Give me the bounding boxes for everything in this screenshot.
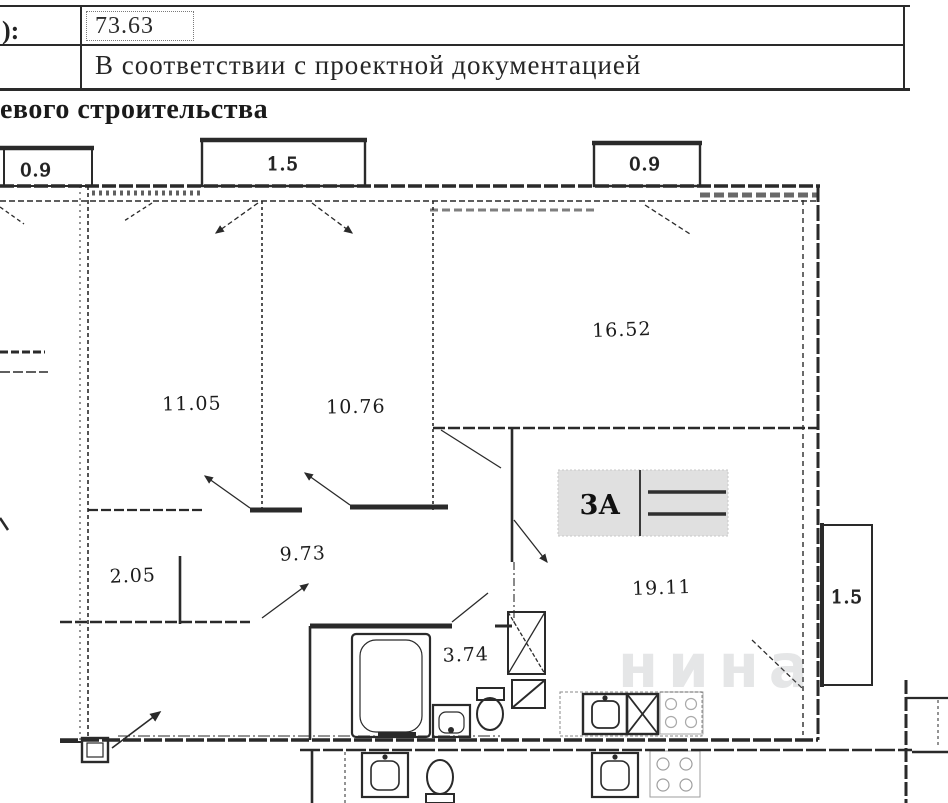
- lower-kitchen-sink: [592, 753, 638, 797]
- unit-stamp-label: 3А: [580, 490, 621, 521]
- kitchen-burners: [660, 692, 703, 734]
- balcony-top-right: 0.9: [592, 143, 702, 186]
- balcony-top-center-area: 1.5: [267, 154, 299, 175]
- balcony-right: 1.5: [822, 523, 872, 687]
- floor-plan-drawing: 0.9 1.5 0.9 1.5: [0, 0, 948, 803]
- balcony-top-center: 1.5: [200, 140, 367, 186]
- toilet: [477, 688, 504, 730]
- lower-kitchen-burners: [650, 751, 700, 797]
- room-middle-area: 10.76: [326, 395, 386, 418]
- kitchen-stove: [627, 694, 658, 734]
- unit-stamp: 3А: [558, 470, 728, 536]
- balcony-right-area: 1.5: [831, 587, 863, 608]
- room-left-area: 11.05: [162, 392, 222, 415]
- balcony-top-left-area: 0.9: [20, 160, 52, 181]
- ventilation-shafts: [508, 612, 545, 708]
- lower-unit-fixtures: [312, 750, 700, 803]
- kitchen-counter: [560, 692, 703, 736]
- bathroom-sink: [433, 705, 470, 737]
- kitchen-sink: [583, 694, 627, 734]
- balcony-top-right-area: 0.9: [629, 154, 661, 175]
- bathroom-area: 3.74: [442, 643, 489, 667]
- scanned-document-page: ): 73.63 В соответствии с проектной доку…: [0, 0, 948, 803]
- lower-toilet: [426, 760, 454, 803]
- bathtub: [352, 634, 430, 737]
- lower-sink: [362, 753, 408, 797]
- kitchen-living-area: 19.11: [632, 576, 692, 600]
- hallway-area: 9.73: [279, 542, 326, 566]
- room-top-right-area: 16.52: [592, 318, 652, 342]
- balcony-top-left: 0.9: [0, 148, 94, 186]
- closet-area: 2.05: [109, 564, 156, 588]
